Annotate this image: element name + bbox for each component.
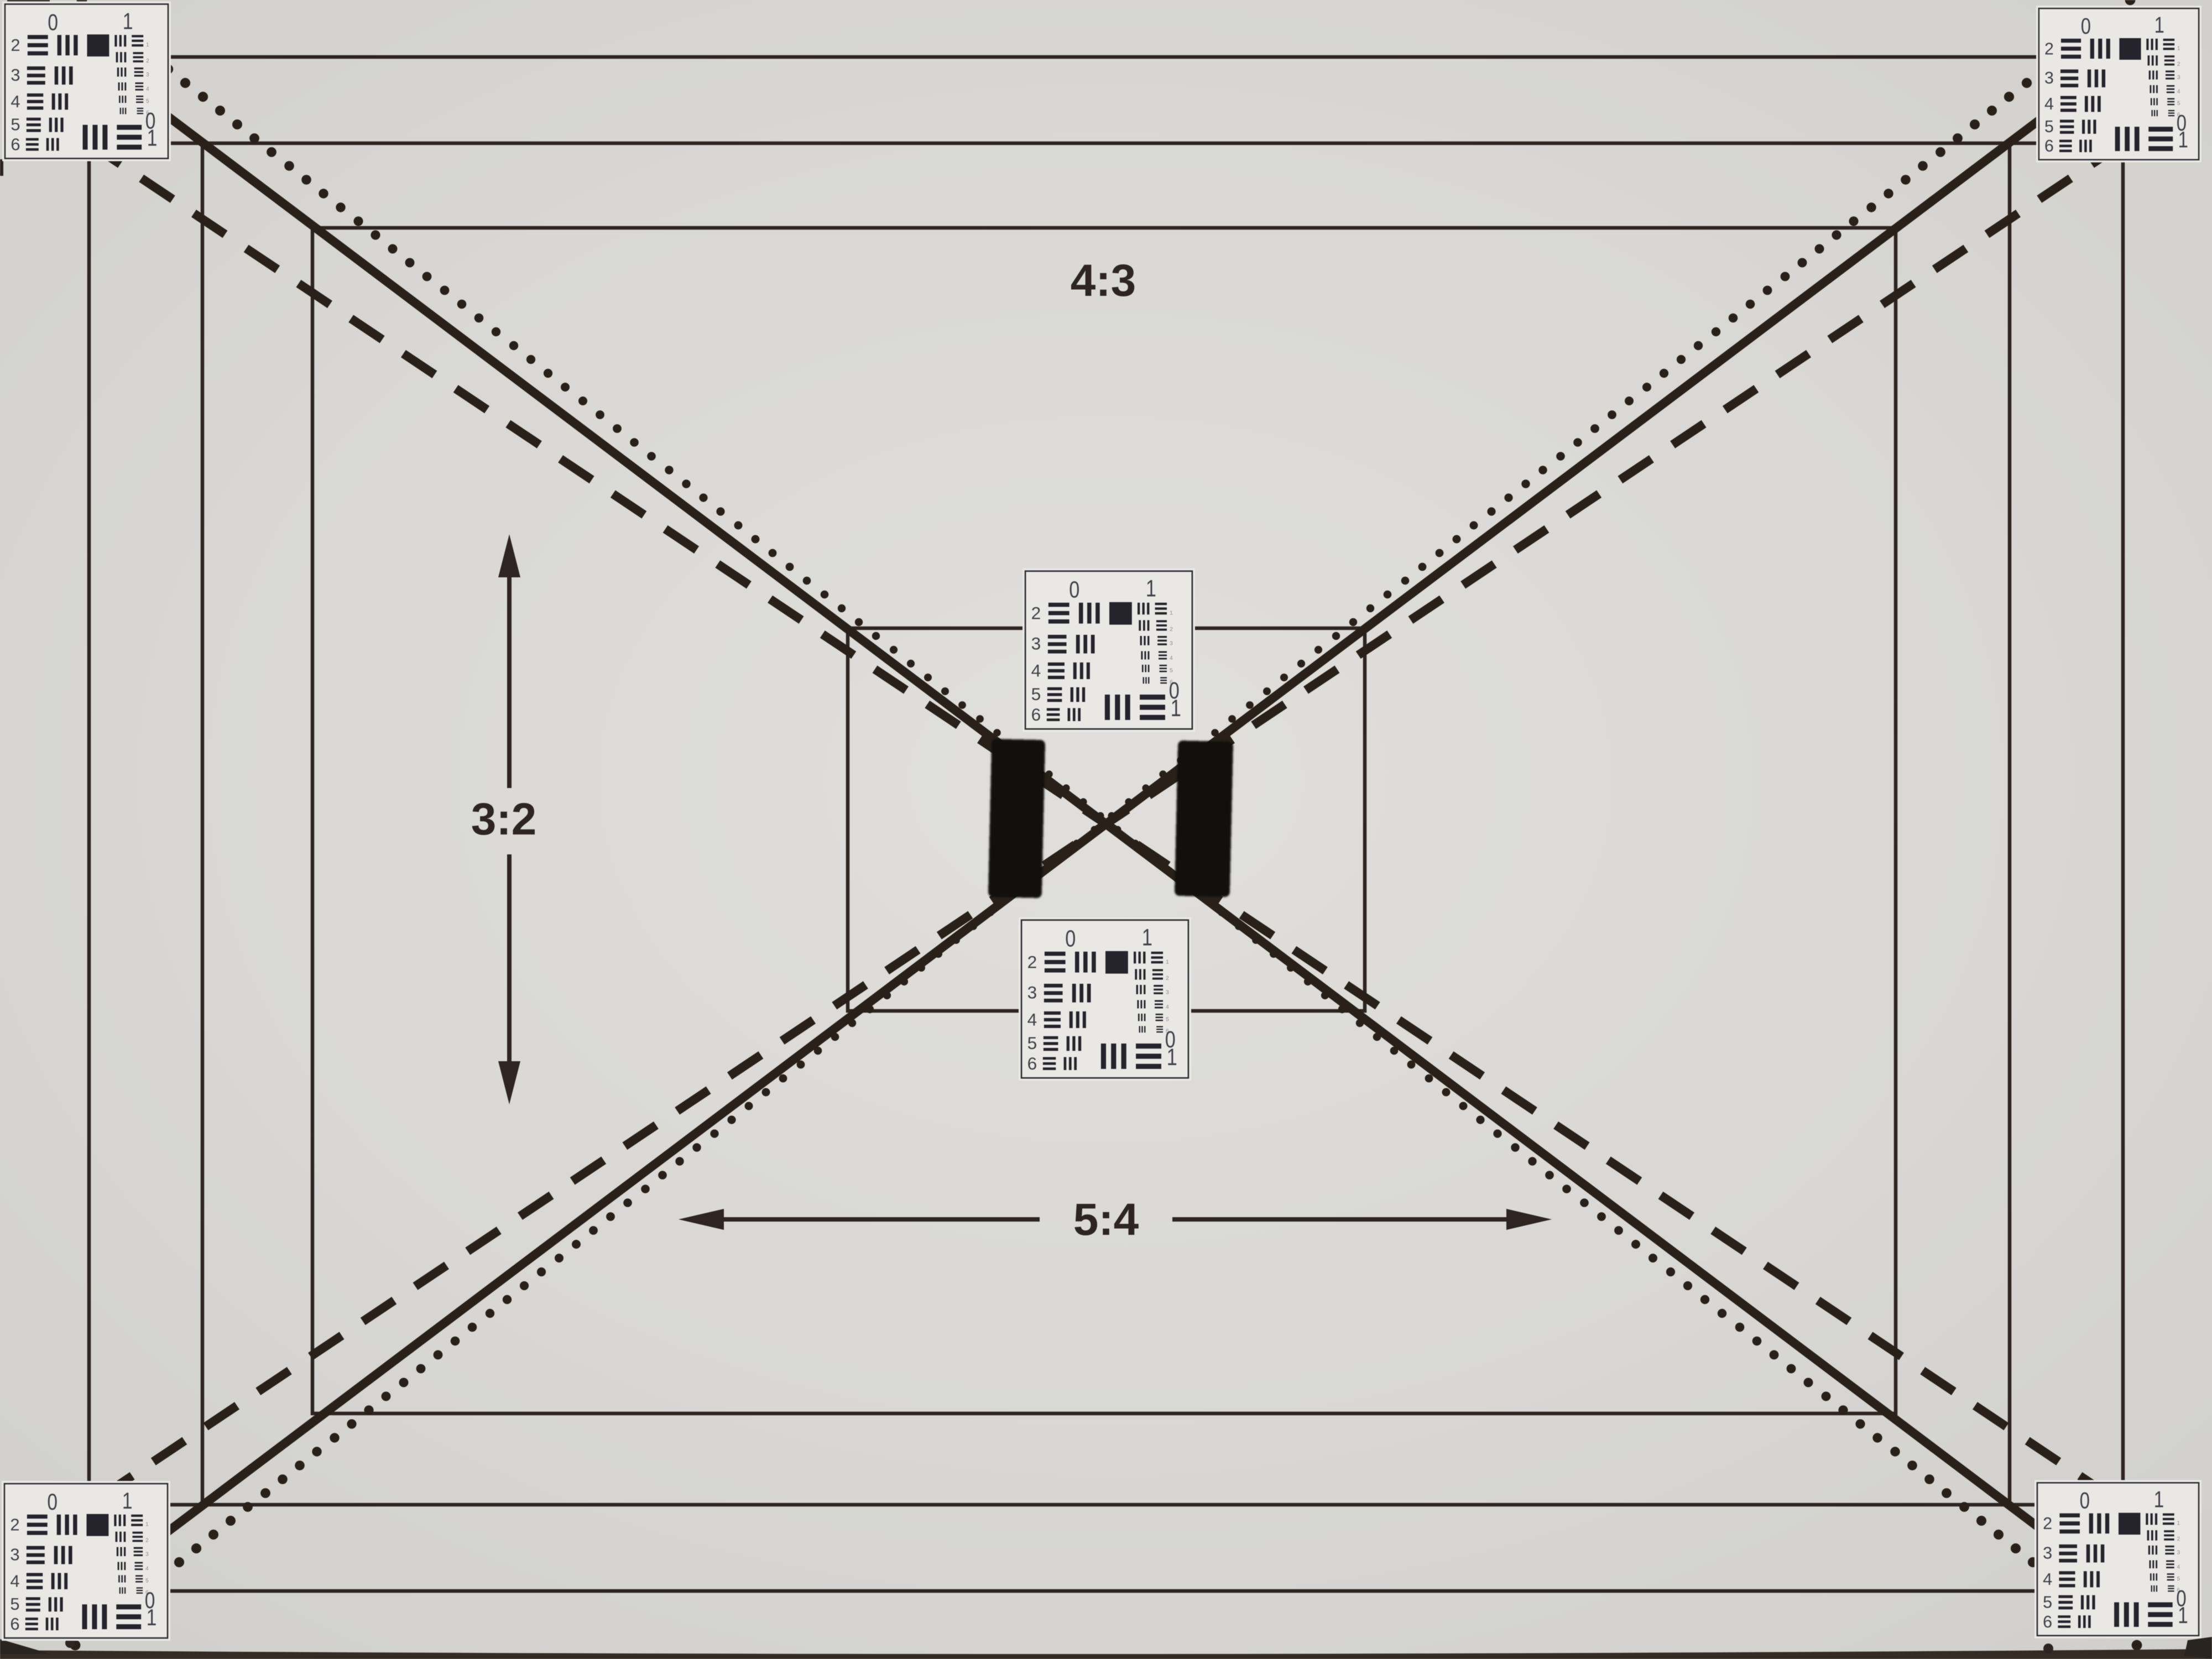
svg-text:3:2: 3:2	[471, 794, 537, 844]
svg-text:4:3: 4:3	[1071, 255, 1136, 306]
svg-text:5:4: 5:4	[1073, 1194, 1139, 1245]
